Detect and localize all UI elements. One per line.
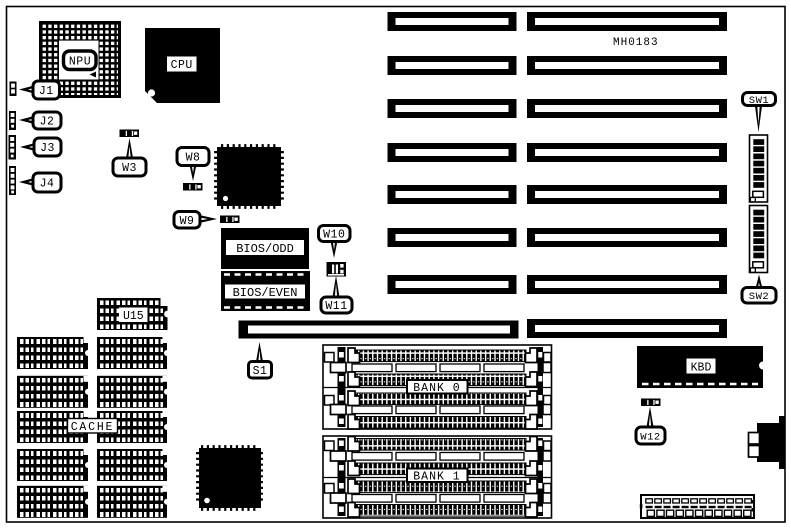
svg-text:W3: W3 xyxy=(122,162,137,175)
svg-text:W8: W8 xyxy=(186,152,201,165)
svg-text:J3: J3 xyxy=(40,142,55,155)
svg-text:CACHE: CACHE xyxy=(71,421,115,434)
svg-text:BANK 0: BANK 0 xyxy=(413,382,460,395)
svg-text:CPU: CPU xyxy=(171,59,193,72)
svg-text:U15: U15 xyxy=(123,310,144,323)
svg-text:KBD: KBD xyxy=(691,362,712,375)
svg-text:BIOS/EVEN: BIOS/EVEN xyxy=(233,286,298,300)
svg-text:W12: W12 xyxy=(640,431,660,443)
svg-text:BANK 1: BANK 1 xyxy=(413,471,460,484)
svg-text:W9: W9 xyxy=(180,215,195,228)
svg-text:W10: W10 xyxy=(323,229,345,242)
svg-text:S1: S1 xyxy=(253,365,268,378)
svg-text:J1: J1 xyxy=(39,85,54,98)
svg-text:MH0183: MH0183 xyxy=(613,37,659,49)
svg-text:J4: J4 xyxy=(40,178,55,191)
svg-text:BIOS/ODD: BIOS/ODD xyxy=(236,242,294,256)
svg-text:NPU: NPU xyxy=(69,56,91,69)
svg-text:J2: J2 xyxy=(40,116,55,129)
svg-text:W11: W11 xyxy=(325,300,347,313)
svg-text:SW1: SW1 xyxy=(749,95,769,107)
svg-text:SW2: SW2 xyxy=(749,291,769,303)
